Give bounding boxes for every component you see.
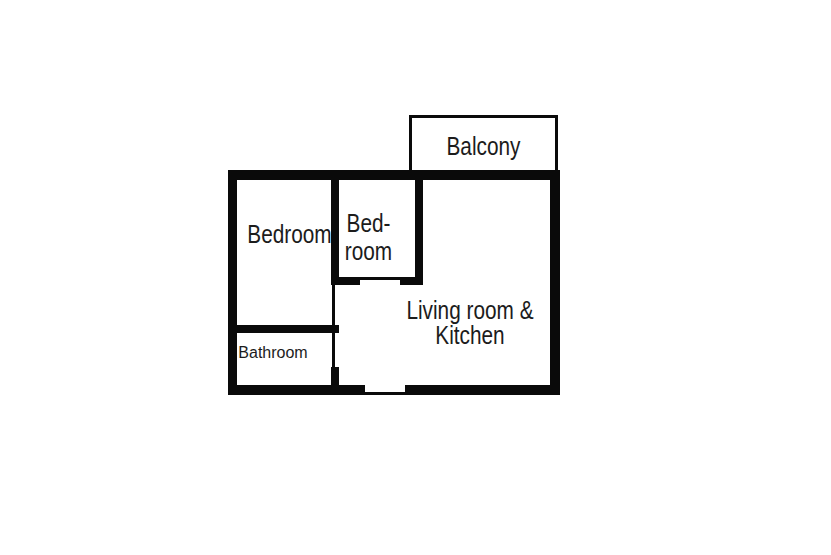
living-kitchen-label: Living room & Kitchen bbox=[374, 298, 566, 348]
floorplan-canvas: Balcony Bedroom Bed- room Living room & … bbox=[0, 0, 831, 555]
bathroom-label: Bathroom bbox=[237, 344, 309, 362]
outer-wall-bottom-left-segment bbox=[228, 385, 365, 395]
living-kitchen-label-line2: Kitchen bbox=[374, 323, 566, 348]
wall-small-bedroom-bottom-right-segment bbox=[400, 277, 423, 285]
entry-door-threshold-line bbox=[365, 392, 405, 395]
hall-opening-line-lower bbox=[332, 333, 335, 367]
hall-opening-line-upper bbox=[332, 285, 335, 325]
small-bedroom-label-line2: room bbox=[338, 237, 400, 265]
wall-small-bedroom-right bbox=[415, 180, 423, 285]
small-bedroom-door-line bbox=[360, 277, 400, 280]
small-bedroom-label-line1: Bed- bbox=[338, 209, 400, 237]
outer-wall-left bbox=[228, 170, 237, 395]
small-bedroom-label: Bed- room bbox=[338, 209, 400, 265]
wall-bathroom-top bbox=[237, 325, 339, 333]
wall-hall-lower-segment bbox=[331, 367, 339, 390]
outer-wall-bottom-right-segment bbox=[405, 385, 560, 395]
bedroom-label: Bedroom bbox=[247, 221, 321, 247]
balcony-label: Balcony bbox=[424, 133, 543, 159]
outer-wall-right bbox=[550, 170, 560, 395]
outer-wall-top bbox=[228, 170, 560, 180]
wall-small-bedroom-bottom-left-segment bbox=[331, 277, 360, 285]
